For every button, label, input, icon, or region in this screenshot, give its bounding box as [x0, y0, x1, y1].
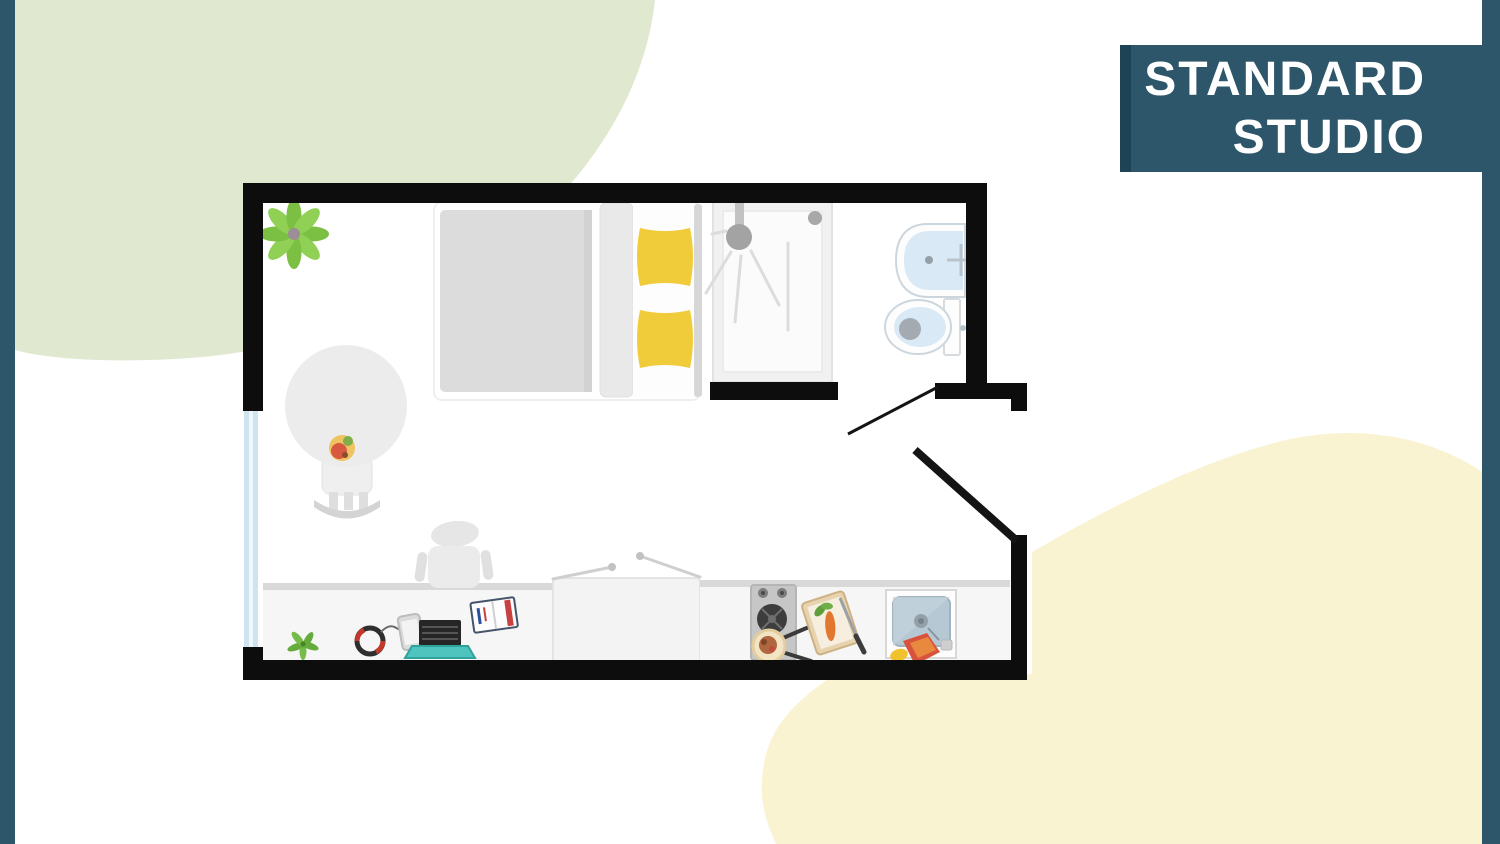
snack-bowl-icon	[329, 435, 355, 461]
title-line-2: STUDIO	[1144, 109, 1426, 167]
shower	[706, 201, 832, 382]
kitchen-counter	[700, 580, 1010, 660]
left-accent-bar	[0, 0, 15, 844]
potted-plant-icon	[259, 199, 329, 269]
page: STANDARD STUDIO	[0, 0, 1500, 844]
title-line-1: STANDARD	[1144, 51, 1426, 109]
wall-right-upper	[966, 183, 987, 383]
page-title: STANDARD STUDIO	[1144, 51, 1426, 167]
wall-top	[243, 183, 987, 203]
headboard	[694, 204, 702, 397]
wall-left-upper	[243, 183, 263, 411]
pillow-icon	[637, 310, 693, 368]
duvet	[440, 210, 592, 392]
wall-bottom	[243, 660, 1027, 680]
wall-right-lower	[1011, 535, 1027, 673]
pillow-icon	[637, 228, 693, 286]
bed	[434, 202, 702, 400]
shower-head-icon	[726, 224, 752, 250]
toilet-icon	[885, 299, 966, 355]
title-box-edge	[1120, 45, 1131, 172]
wall-jut-horizontal	[935, 383, 1027, 399]
wash-basin-icon	[896, 224, 970, 297]
duvet-fold	[600, 203, 633, 397]
notebook-icon	[470, 597, 518, 633]
window-icon	[244, 411, 258, 647]
wall-jut-vertical	[1011, 399, 1027, 411]
title-box: STANDARD STUDIO	[1120, 45, 1482, 172]
shower-pipe	[735, 201, 744, 227]
shower-knob	[808, 211, 822, 225]
wall-shower-bottom	[710, 382, 838, 400]
right-accent-bar	[1482, 0, 1500, 844]
